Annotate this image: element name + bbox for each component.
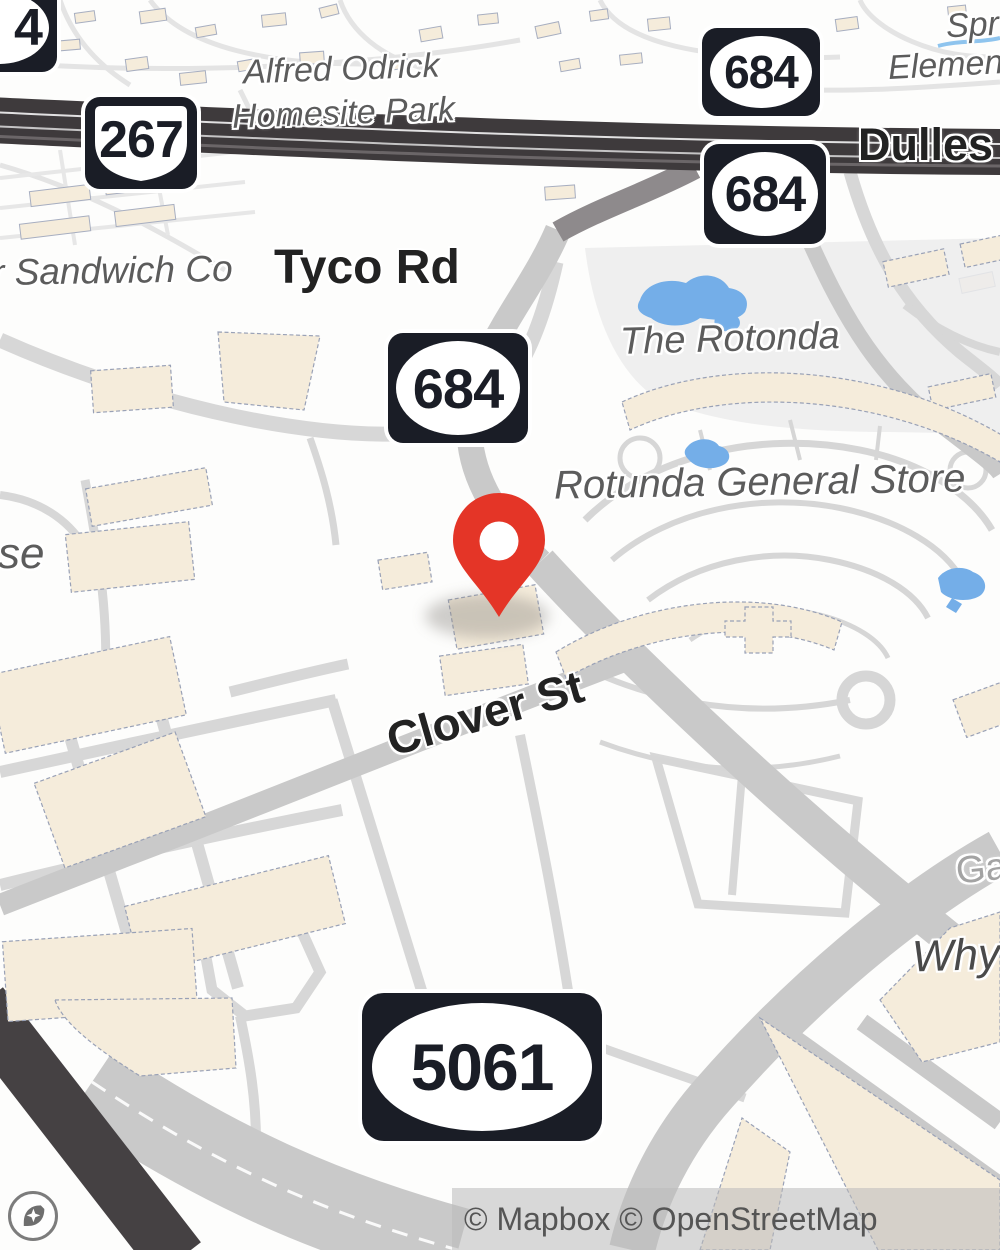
label-spr: Spr (945, 7, 1000, 44)
route-number: 4 (14, 0, 42, 58)
map-viewport[interactable]: 4 267 684 684 684 5061 Alfred Odrick Hom… (0, 0, 1000, 1250)
location-pin-marker[interactable] (445, 480, 555, 625)
label-elemen: Elemen (887, 45, 1000, 85)
attribution-text[interactable]: © Mapbox © OpenStreetMap (452, 1201, 878, 1238)
route-number: 684 (725, 165, 805, 223)
label-sandwich-co: r Sandwich Co (0, 250, 233, 291)
route-shield-5061: 5061 (362, 993, 602, 1141)
label-rotunda-general-store: Rotunda General Store (554, 458, 966, 505)
route-number: 684 (724, 45, 798, 99)
label-dulles: Dulles (858, 122, 993, 167)
label-the-rotonda: The Rotonda (620, 317, 841, 361)
label-tyco-rd: Tyco Rd (274, 244, 460, 292)
route-shield-684-right: 684 (704, 144, 826, 244)
route-shield-684-center: 684 (388, 333, 528, 443)
route-number: 684 (413, 356, 503, 421)
label-park-line1: Alfred Odrick (242, 49, 440, 90)
label-ga: Ga (954, 847, 1000, 890)
label-why: Why (911, 932, 1000, 979)
route-shield-684-top: 684 (702, 28, 820, 116)
route-number: 267 (99, 110, 183, 170)
route-shield-partial: 4 (0, 0, 57, 72)
mapbox-logo-icon (16, 1199, 50, 1233)
route-shield-267: 267 (85, 97, 197, 189)
attribution-bar: © Mapbox © OpenStreetMap (452, 1188, 1000, 1250)
mapbox-logo[interactable] (8, 1191, 58, 1241)
label-park-line2: Homesite Park (231, 92, 455, 134)
label-se: se (0, 532, 44, 576)
route-number: 5061 (411, 1029, 554, 1105)
